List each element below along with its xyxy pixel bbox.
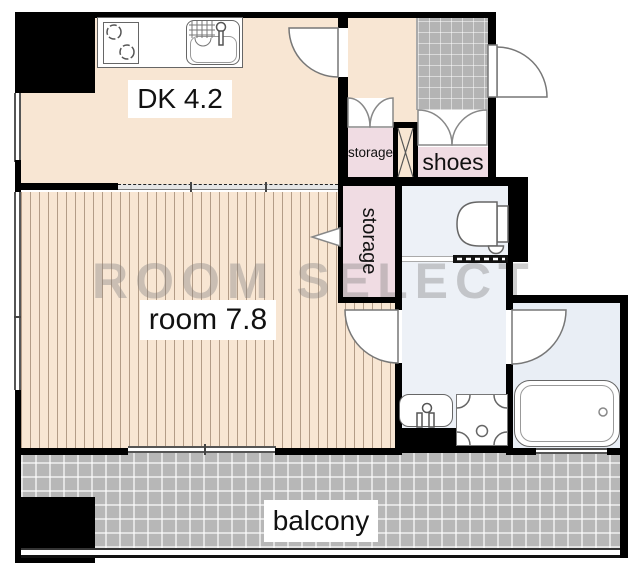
storage-room-label: storage <box>359 191 379 291</box>
window-dk-left <box>14 93 21 162</box>
wall-toilet-right <box>508 186 528 262</box>
wall-storage-row-bottom <box>338 177 528 186</box>
storage-room-label-text: storage <box>358 208 381 275</box>
wall-entrance-right-top <box>488 12 496 45</box>
pillar-top-left <box>15 12 95 93</box>
kitchen-sink-basin <box>190 36 237 63</box>
wall-bathroom-right <box>620 295 628 455</box>
dk-label: DK 4.2 <box>128 80 232 118</box>
wall-balcony-left <box>15 455 21 497</box>
storage-hall-label: storage <box>346 128 395 177</box>
wall-dk-room <box>15 183 118 190</box>
slider-tick <box>190 182 192 192</box>
wall-room-bottom-right <box>275 448 402 455</box>
wall-room-washroom-upper <box>395 186 402 310</box>
entrance-door <box>488 45 547 97</box>
shoes-label: shoes <box>418 147 488 177</box>
entrance-door-band <box>418 110 488 147</box>
toilet-floor <box>402 186 508 258</box>
bathtub-inner <box>520 385 614 442</box>
room-label-text: room 7.8 <box>149 303 267 337</box>
stove <box>103 22 139 64</box>
wall-storage-room-bottom <box>338 297 402 303</box>
storage-hall-door-band <box>348 98 393 128</box>
entrance-tile-floor <box>418 18 488 110</box>
window-divider <box>204 444 206 455</box>
wall-bath-bottom-left <box>506 448 536 455</box>
wall-under-washer <box>458 446 512 453</box>
dk-room-slider-rail <box>118 184 338 190</box>
shoes-label-text: shoes <box>422 149 483 176</box>
wall-bathroom-top <box>506 295 628 303</box>
window-room-balcony <box>128 446 276 453</box>
room-label: room 7.8 <box>140 300 276 340</box>
washer-pan <box>456 394 508 446</box>
wall-under-basin <box>398 428 458 453</box>
storage-hall-label-text: storage <box>348 145 393 160</box>
balcony-label-text: balcony <box>273 505 370 537</box>
balcony-label: balcony <box>264 500 378 542</box>
window-divider <box>14 316 21 318</box>
slider-tick <box>265 182 267 192</box>
window-room-left <box>14 192 21 390</box>
dk-label-text: DK 4.2 <box>137 83 223 115</box>
wall-room-left-bottom <box>15 390 21 455</box>
toilet-partition-line <box>402 256 453 262</box>
wall-room-bottom-left <box>15 448 128 455</box>
wall-balcony-right <box>620 455 628 558</box>
window-bath-balcony <box>536 448 608 454</box>
pipe-space-floor <box>398 128 413 177</box>
wall-bath-bottom-right <box>607 448 628 455</box>
wall-dk-hall-upper <box>338 12 348 28</box>
wall-storage-room-left <box>338 186 343 303</box>
floor-plan: ROOM SELECT <box>0 0 640 580</box>
wall-entrance-right-bottom <box>488 97 496 186</box>
balcony-railing <box>21 548 620 558</box>
washbasin <box>399 394 453 427</box>
entrance-step-line <box>416 18 418 110</box>
